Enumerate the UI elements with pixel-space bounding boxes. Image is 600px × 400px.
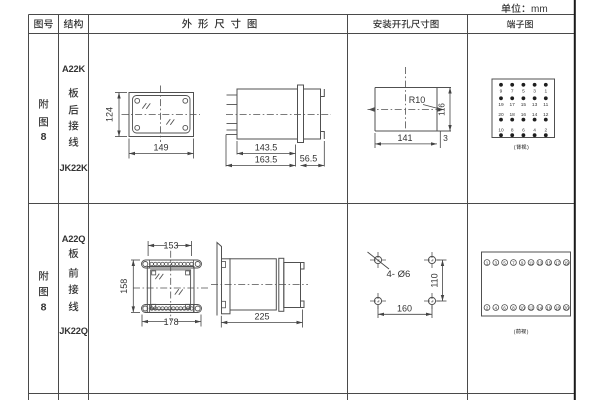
svg-text:8: 8 [41, 301, 47, 313]
svg-text:20: 20 [498, 112, 504, 118]
svg-text:160: 160 [397, 304, 412, 314]
svg-text:178: 178 [164, 317, 179, 327]
svg-text:5: 5 [503, 260, 506, 265]
svg-text:2: 2 [544, 128, 547, 134]
svg-text:2: 2 [486, 305, 489, 310]
svg-text:141: 141 [397, 133, 412, 143]
svg-text:12: 12 [543, 112, 549, 118]
svg-text:10: 10 [520, 305, 525, 310]
svg-text:18: 18 [555, 305, 560, 310]
svg-text:13: 13 [532, 102, 538, 108]
svg-text:16: 16 [521, 112, 527, 118]
svg-text:): ) [527, 329, 529, 335]
svg-text:116: 116 [438, 103, 447, 116]
svg-text:16: 16 [546, 305, 551, 310]
svg-text:11: 11 [543, 102, 548, 108]
svg-text:): ) [527, 145, 529, 151]
svg-text:JK22K: JK22K [60, 163, 88, 173]
svg-text:3: 3 [495, 260, 498, 265]
svg-text:mm: mm [531, 4, 548, 15]
svg-text:3: 3 [533, 88, 536, 94]
svg-text:5: 5 [522, 88, 525, 94]
svg-text:JK22Q: JK22Q [59, 326, 87, 336]
svg-text:4: 4 [495, 305, 498, 310]
svg-text:153: 153 [163, 241, 178, 251]
svg-text:149: 149 [153, 143, 168, 153]
svg-text:A22K: A22K [62, 64, 85, 74]
svg-text:19: 19 [564, 260, 569, 265]
svg-text:(: ( [514, 329, 516, 335]
svg-text:225: 225 [254, 312, 269, 322]
svg-text:8: 8 [512, 305, 515, 310]
svg-text:18: 18 [510, 112, 516, 118]
svg-text:6: 6 [503, 305, 506, 310]
svg-text:19: 19 [498, 102, 504, 108]
svg-text:17: 17 [555, 260, 560, 265]
svg-text:(: ( [514, 145, 516, 151]
svg-text:110: 110 [430, 273, 440, 287]
svg-text:8: 8 [511, 128, 514, 134]
svg-text:13: 13 [538, 260, 543, 265]
svg-text:12: 12 [529, 305, 534, 310]
svg-text:15: 15 [546, 260, 551, 265]
svg-text:6: 6 [522, 128, 525, 134]
svg-text:4: 4 [533, 128, 536, 134]
svg-text:3: 3 [443, 133, 448, 143]
svg-text:124: 124 [104, 107, 114, 122]
svg-text:9: 9 [521, 260, 524, 265]
svg-text:17: 17 [510, 102, 516, 108]
svg-text:8: 8 [41, 131, 47, 143]
svg-text:A22Q: A22Q [62, 234, 86, 244]
svg-text:143.5: 143.5 [255, 143, 278, 153]
svg-text:15: 15 [521, 102, 527, 108]
svg-text:4- Ø6: 4- Ø6 [387, 269, 411, 280]
svg-text:14: 14 [532, 112, 538, 118]
svg-text:1: 1 [544, 88, 547, 94]
svg-text:56.5: 56.5 [300, 154, 318, 164]
svg-text:163.5: 163.5 [255, 155, 278, 165]
svg-text:9: 9 [500, 88, 503, 94]
svg-text:1: 1 [486, 260, 489, 265]
svg-text:R10: R10 [409, 95, 426, 105]
svg-text:7: 7 [511, 88, 514, 94]
svg-text:20: 20 [564, 305, 569, 310]
svg-text:158: 158 [119, 279, 129, 294]
svg-text:14: 14 [538, 305, 543, 310]
svg-text:11: 11 [529, 260, 534, 265]
svg-text:7: 7 [512, 260, 515, 265]
svg-text:10: 10 [498, 128, 504, 134]
